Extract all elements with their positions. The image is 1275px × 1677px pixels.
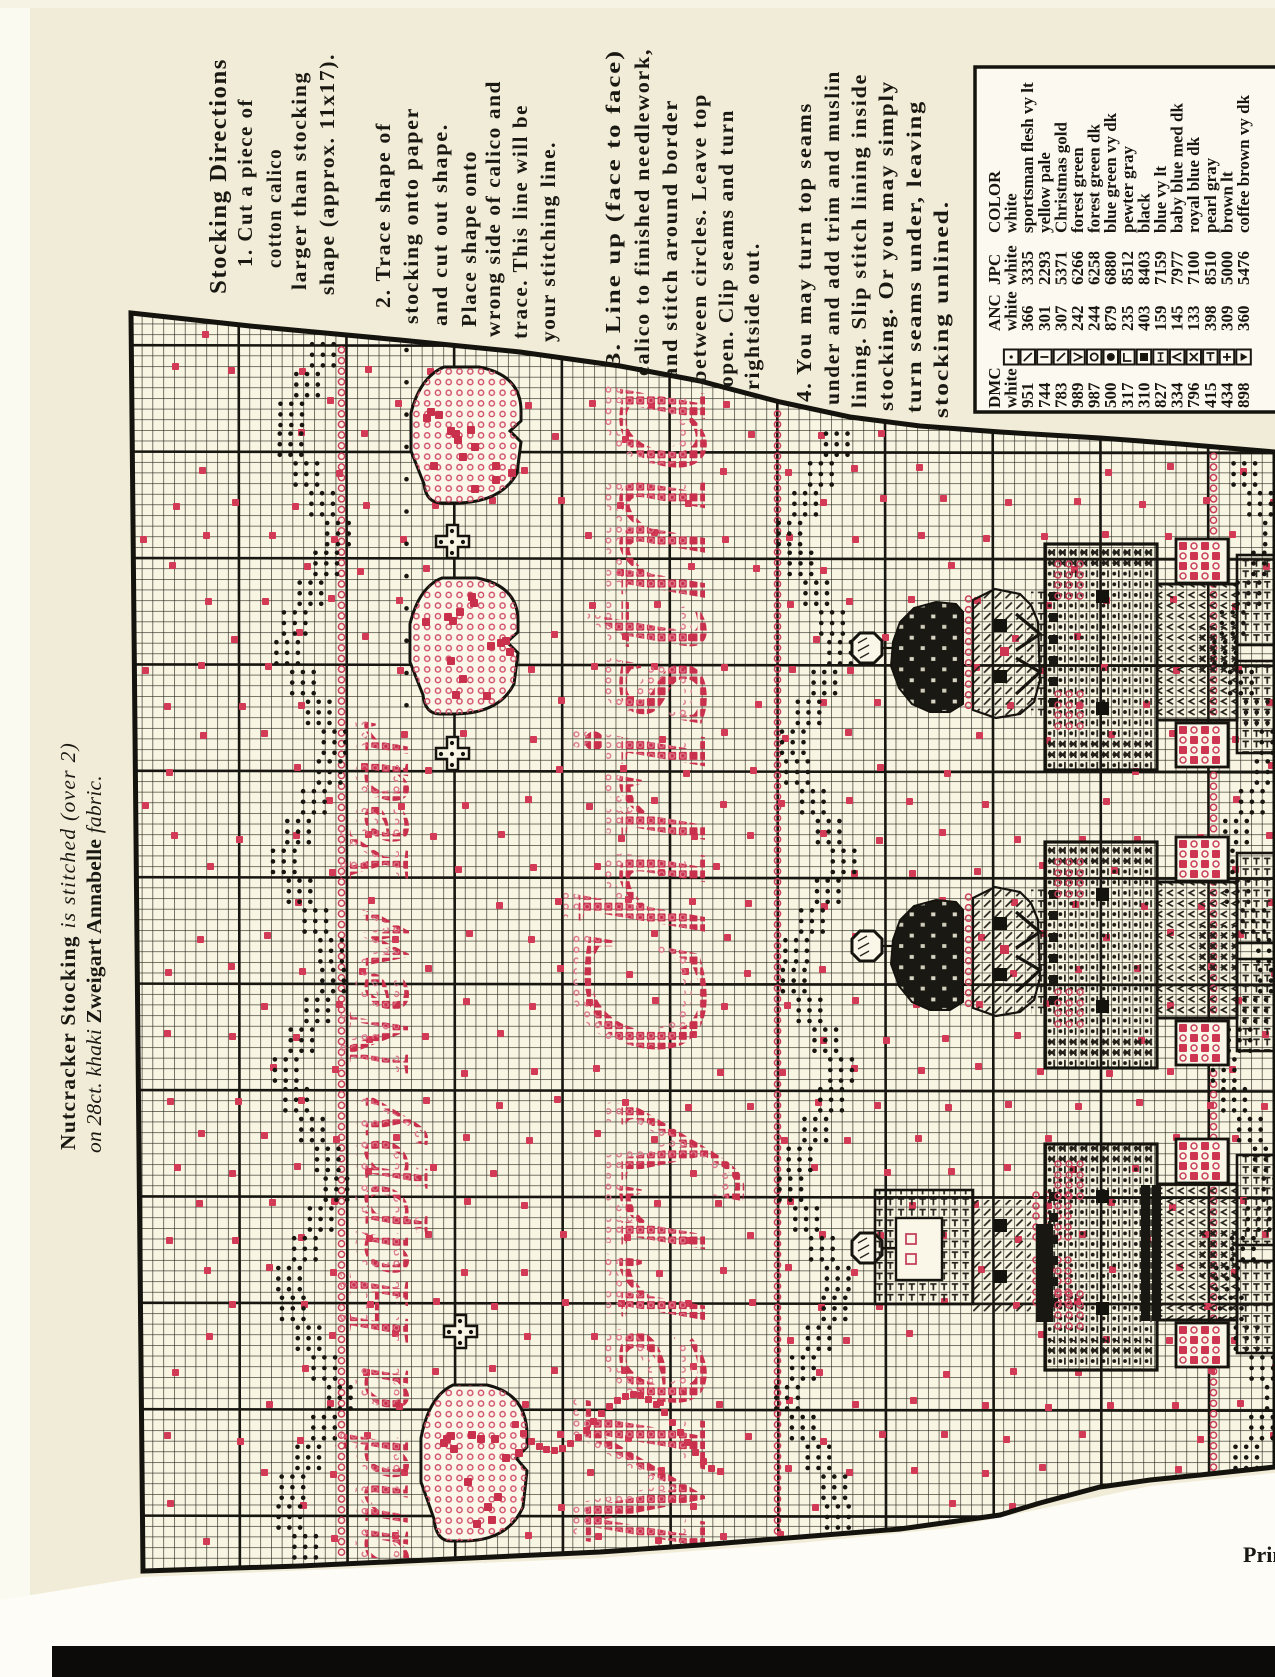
svg-text:trace. This line will be: trace. This line will be (508, 104, 532, 339)
svg-text:3. Line up (face to face): 3. Line up (face to face) (601, 49, 625, 366)
svg-text:between circles. Leave top: between circles. Leave top (687, 93, 711, 383)
svg-text:2. Trace shape of: 2. Trace shape of (371, 122, 395, 308)
svg-text:stocking unlined.: stocking unlined. (929, 200, 953, 418)
svg-text:cotton calico: cotton calico (262, 148, 286, 268)
svg-text:Merry Christmas: Merry Christmas (529, 308, 730, 1560)
svg-text:calico to finished needlework,: calico to finished needlework, (630, 48, 654, 376)
svg-text:1. Cut a piece of: 1. Cut a piece of (233, 98, 257, 267)
svg-text:Stocking Directions: Stocking Directions (205, 58, 232, 294)
svg-text:360: 360 (1234, 306, 1253, 332)
svg-text:shape (approx. 11x17).: shape (approx. 11x17). (315, 53, 339, 295)
svg-text:stocking onto paper: stocking onto paper (399, 107, 423, 324)
svg-text:coffee brown vy dk: coffee brown vy dk (1234, 94, 1253, 233)
svg-text:4. You may turn top seams: 4. You may turn top seams (792, 102, 816, 402)
svg-text:on 28ct. khaki Zweigart Annabe: on 28ct. khaki Zweigart Annabelle fabric… (82, 775, 106, 1153)
svg-text:and cut out shape.: and cut out shape. (428, 123, 452, 326)
svg-text:and a Happy New Year: and a Happy New Year (317, 719, 419, 1570)
svg-text:Nutcracker Stocking is stitche: Nutcracker Stocking is stitched (over 2) (56, 742, 80, 1150)
svg-text:lining. Slip stitch lining ins: lining. Slip stitch lining inside (847, 73, 871, 408)
svg-text:898: 898 (1234, 383, 1253, 409)
svg-text:turn seams under, leaving: turn seams under, leaving (902, 100, 926, 413)
svg-text:stocking. Or you may simply: stocking. Or you may simply (874, 80, 898, 411)
svg-text:under and add trim and muslin: under and add trim and muslin (820, 70, 844, 405)
svg-text:Place shape onto: Place shape onto (457, 150, 481, 327)
svg-text:open. Clip seams and turn: open. Clip seams and turn (714, 109, 738, 387)
svg-text:larger than stocking: larger than stocking (287, 71, 311, 290)
svg-text:5476: 5476 (1234, 251, 1253, 285)
svg-text:and stitch around border: and stitch around border (658, 99, 682, 379)
svg-text:wrong side of calico and: wrong side of calico and (481, 80, 505, 337)
svg-text:Prin: Prin (1243, 1542, 1275, 1567)
svg-text:your stitching line.: your stitching line. (536, 141, 560, 342)
svg-text:rightside out.: rightside out. (740, 242, 764, 390)
